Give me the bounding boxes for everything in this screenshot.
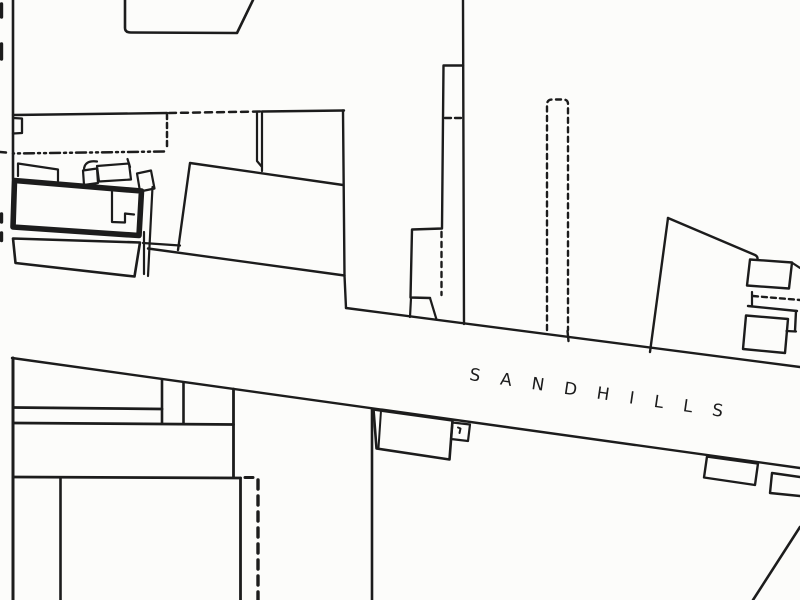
ne-right-wall xyxy=(795,311,796,331)
plot-boundary-solid-right xyxy=(262,111,344,112)
edge-mark-3 xyxy=(0,152,6,153)
main-vertical-boundary xyxy=(463,0,464,324)
sw-lower-boundary xyxy=(14,477,241,478)
southeast-structures xyxy=(704,457,800,600)
outbuilding-tick xyxy=(128,159,131,167)
central-parcel-outline xyxy=(178,163,343,250)
sw-band-line-2 xyxy=(14,423,234,425)
highlighted-building xyxy=(13,181,142,236)
road-sandhills xyxy=(12,308,800,468)
south-building-annex-mark xyxy=(458,428,461,434)
road-top-edge xyxy=(346,308,800,367)
highlighted-building-outline xyxy=(13,181,142,236)
central-parcel-bottom-wall xyxy=(148,249,345,276)
se-building-2 xyxy=(770,473,800,496)
south-building xyxy=(372,409,470,600)
small-notch-box xyxy=(13,118,22,134)
southwest-block xyxy=(13,358,258,600)
northwest-block xyxy=(13,0,346,308)
dashed-structure-outline xyxy=(547,100,568,331)
sw-band-line-1 xyxy=(14,408,162,410)
plot-boundary-solid-left xyxy=(13,113,167,115)
party-wall-line-1 xyxy=(148,187,153,276)
ne-horizontal-wall xyxy=(748,306,797,311)
parcel-below-highlight xyxy=(13,239,140,277)
map-edge-marks xyxy=(0,4,6,241)
plot-boundary-dashed-mid xyxy=(169,112,262,114)
ne-building-2 xyxy=(743,316,788,354)
central-parcel-right-wall xyxy=(343,111,346,309)
outbuilding-c xyxy=(97,164,131,182)
ne-parcel-top-edge xyxy=(668,218,758,260)
se-diagonal-boundary xyxy=(753,527,800,600)
outbuilding-a xyxy=(18,164,58,182)
ne-building-1 xyxy=(747,260,792,289)
ne-edge-extension xyxy=(793,263,800,268)
dashed-structure xyxy=(547,100,569,342)
central-strip xyxy=(410,0,464,324)
northeast-complex xyxy=(650,218,800,353)
ne-parcel-left-edge xyxy=(650,218,668,352)
outbuilding-b xyxy=(83,169,98,186)
south-building-inner-wall xyxy=(379,411,382,449)
strip-building-outline xyxy=(411,66,464,299)
map-canvas xyxy=(0,0,800,600)
narrow-sliver-wall xyxy=(257,112,262,171)
ne-dashed-line xyxy=(753,296,800,300)
top-building-outline xyxy=(125,0,253,33)
dash-dot-boundary xyxy=(13,152,164,154)
site-plan-map: SANDHILLS xyxy=(0,0,800,600)
